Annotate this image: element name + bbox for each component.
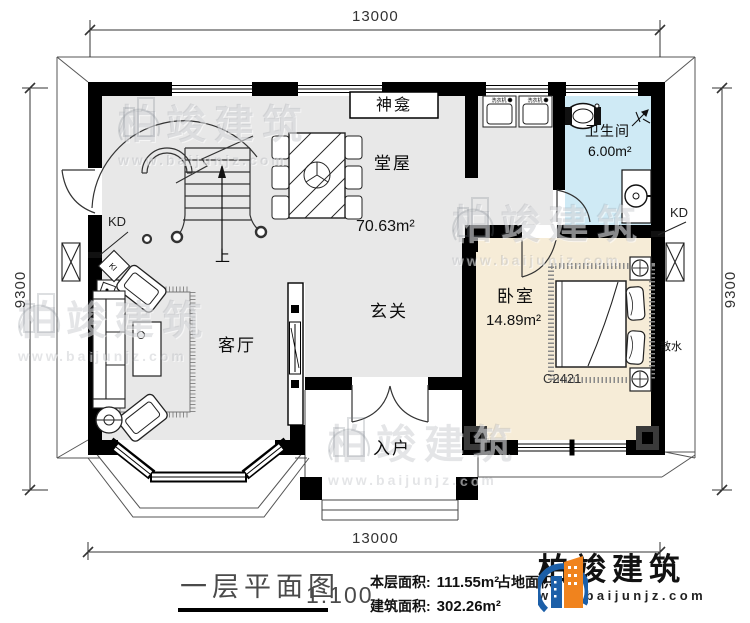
kd-label-right: KD [670,206,688,219]
room-label-hall: 堂屋 [374,155,412,172]
room-label-bedroom: 卧室 [497,288,535,305]
room-area-bedroom: 14.89m² [486,313,541,328]
room-label-shrine: 神龛 [350,98,438,114]
tv-cabinet-icon [288,283,303,425]
brand-logo: 柏竣建筑 www.baijunjz.com [538,554,706,603]
room-area-bathroom: 6.00m² [588,144,632,158]
washbasin-icon [622,170,651,223]
floor-area: 本层面积:111.55m² [370,575,499,590]
svg-text:洗衣机: 洗衣机 [527,97,542,104]
apron-label: 散水 [660,342,682,353]
dim-right: 9300 [723,271,738,308]
window-code: C2421 [543,372,581,385]
bay-window [110,442,287,477]
build-area: 建筑面积:302.26m² [370,599,501,614]
dim-bottom: 13000 [352,531,399,546]
porch-columns [300,477,478,500]
bay-window-sill [88,452,309,517]
dim-left: 9300 [13,271,28,308]
dim-top: 13000 [352,9,399,24]
svg-text:洗衣机: 洗衣机 [491,97,506,104]
room-area-hall: 70.63m² [356,219,415,235]
room-label-foyer: 玄关 [370,303,408,320]
brand-logo-icon [538,554,588,616]
stairs-up-label: 上 [215,249,230,264]
room-label-bathroom: 卫生间 [585,124,630,138]
floor-fills [102,96,651,440]
room-label-living: 客厅 [218,337,256,354]
dining-table-icon [272,133,362,219]
floorplan-page: 洗衣机 洗衣机 [0,0,750,623]
title-underline [178,608,328,612]
kd-label-left: KD [108,215,126,228]
plan-scale: 1:100 [306,584,374,607]
room-label-entry: 入户 [373,440,411,457]
